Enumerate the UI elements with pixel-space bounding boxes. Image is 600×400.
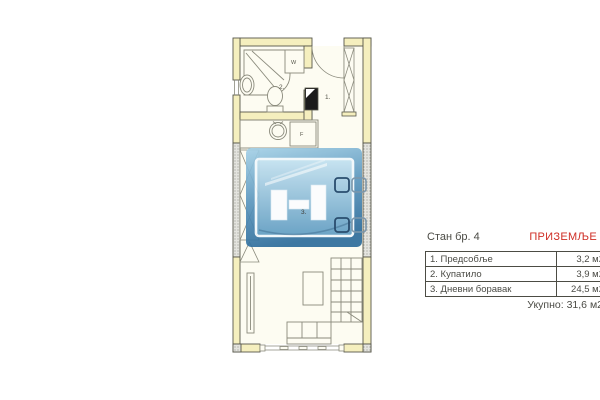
room-label-hallway: 1. — [325, 94, 331, 101]
wall-right-shared — [363, 143, 371, 257]
living-room-window — [260, 345, 344, 351]
room-label-living-room: 3. — [301, 209, 307, 216]
apartment-title: Стан бр. 4 — [427, 231, 480, 243]
wall-bathroom-bottom — [240, 112, 312, 120]
room-name: 1. Предсобље — [426, 254, 556, 265]
wall-right-upper — [363, 38, 371, 143]
room-name: 3. Дневни боравак — [426, 284, 556, 295]
logo-crossbar — [289, 200, 309, 209]
hallway-closet — [342, 48, 356, 116]
wall-bottom-right-cap — [363, 344, 371, 352]
apartment-header: Стан бр. 4 ПРИЗЕМЉЕ — [427, 229, 597, 244]
wall-top — [240, 38, 312, 46]
wall-left-lower — [233, 257, 240, 352]
wall-left-shared — [233, 143, 240, 257]
room-area: 24,5 м2 — [556, 282, 600, 296]
room-label-bathroom: 2. — [279, 84, 285, 91]
area-table: 1. Предсобље 3,2 м2 2. Купатило 3,9 м2 3… — [425, 251, 600, 297]
room-name: 2. Купатило — [426, 269, 556, 280]
bathroom-sink-basin — [243, 78, 252, 92]
wall-bottom-left-cap — [233, 344, 241, 352]
floor-plan: 1. 2. 3. W F — [225, 28, 375, 358]
page: 1. 2. 3. W F Стан бр. 4 ПРИЗЕМЉЕ 1. Пред… — [0, 0, 600, 400]
room-area: 3,2 м2 — [556, 252, 600, 266]
toilet-tank — [267, 106, 283, 112]
table-row: 2. Купатило 3,9 м2 — [426, 266, 600, 281]
wall-left-mid — [233, 95, 240, 143]
table-row: 3. Дневни боравак 24,5 м2 — [426, 281, 600, 296]
logo-pillar-left — [271, 190, 287, 220]
floor-label: ПРИЗЕМЉЕ — [529, 231, 597, 243]
wall-bathroom-right-upper — [304, 46, 312, 68]
bathroom-window — [235, 80, 239, 95]
room-area: 3,9 м2 — [556, 267, 600, 281]
washing-machine-label: W — [291, 60, 297, 66]
logo-pillar-right — [311, 185, 326, 220]
wall-right-lower — [363, 257, 371, 352]
table-row: 1. Предсобље 3,2 м2 — [426, 252, 600, 266]
total-area: Укупно: 31,6 м2 — [430, 299, 600, 311]
wall-left-upper — [233, 38, 240, 80]
